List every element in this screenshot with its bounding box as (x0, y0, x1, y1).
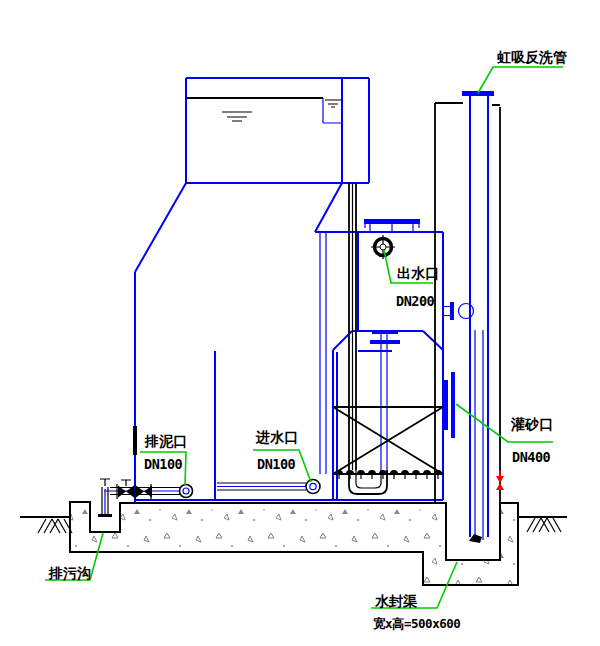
label-mud-drain-dn: DN100 (144, 456, 183, 472)
inlet-pipe-assembly (217, 480, 320, 494)
outlet-port-icon (371, 235, 395, 259)
sand-fill-flange (444, 372, 455, 438)
leader-siphon-backwash (478, 67, 563, 93)
ground-hatch-left-icon (38, 519, 72, 533)
ground-hatch-right-icon (527, 518, 561, 532)
label-inlet-dn: DN100 (257, 456, 296, 472)
siphon-filter-diagram: 虹吸反洗管 出水口 DN200 排泥口 DN100 进水口 DN100 灌砂口 … (0, 0, 600, 646)
label-sewage-ditch: 排污沟 (48, 565, 91, 581)
label-outlet-dn: DN200 (396, 293, 435, 309)
label-sand-fill-dn: DN400 (512, 449, 551, 465)
label-siphon-backwash-pipe: 虹吸反洗管 (497, 49, 567, 65)
top-cover-flange (364, 219, 420, 232)
filter-shell (333, 219, 474, 500)
top-water-tank (186, 78, 369, 183)
backwash-pipe (462, 91, 504, 543)
label-sand-fill-port: 灌砂口 (510, 416, 553, 432)
label-water-seal-channel: 水封渠 (374, 593, 418, 609)
label-mud-drain-port: 排泥口 (144, 433, 187, 449)
label-water-seal-size: 宽x高=500x600 (373, 616, 460, 631)
wall-sleeve-mark (133, 426, 137, 455)
riser-flange (358, 330, 400, 351)
label-outlet-port: 出水口 (397, 265, 439, 281)
mud-drain-flange (180, 485, 193, 498)
side-valve (443, 302, 474, 320)
water-level-icon (222, 112, 252, 121)
foundation-outline (70, 502, 518, 585)
red-valve-icon (496, 470, 504, 490)
label-inlet-port: 进水口 (255, 429, 298, 445)
inlet-flange (306, 480, 320, 494)
cad-drawing-canvas: 虹吸反洗管 出水口 DN200 排泥口 DN100 进水口 DN100 灌砂口 … (0, 0, 600, 646)
water-level-small-icon (325, 100, 341, 107)
drain-down-pipe (98, 479, 112, 517)
tank-down-pipe (349, 183, 356, 470)
funnel-drop-pipe (320, 232, 326, 474)
